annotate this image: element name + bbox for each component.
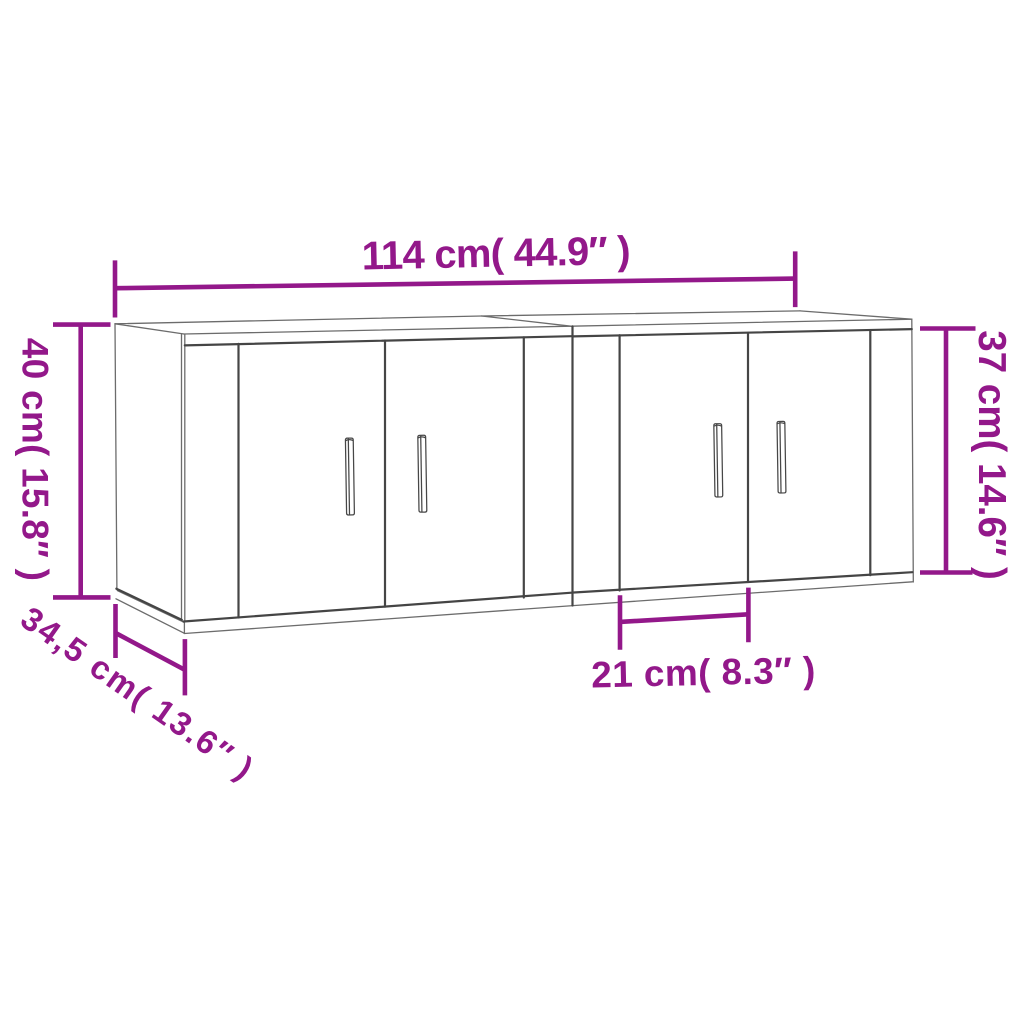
svg-text:21 cm( 8.3″ ): 21 cm( 8.3″ ) bbox=[591, 649, 816, 695]
svg-text:40 cm( 15.8″ ): 40 cm( 15.8″ ) bbox=[15, 338, 56, 581]
svg-text:37 cm( 14.6″ ): 37 cm( 14.6″ ) bbox=[970, 330, 1013, 580]
svg-text:114 cm( 44.9″ ): 114 cm( 44.9″ ) bbox=[361, 229, 630, 279]
